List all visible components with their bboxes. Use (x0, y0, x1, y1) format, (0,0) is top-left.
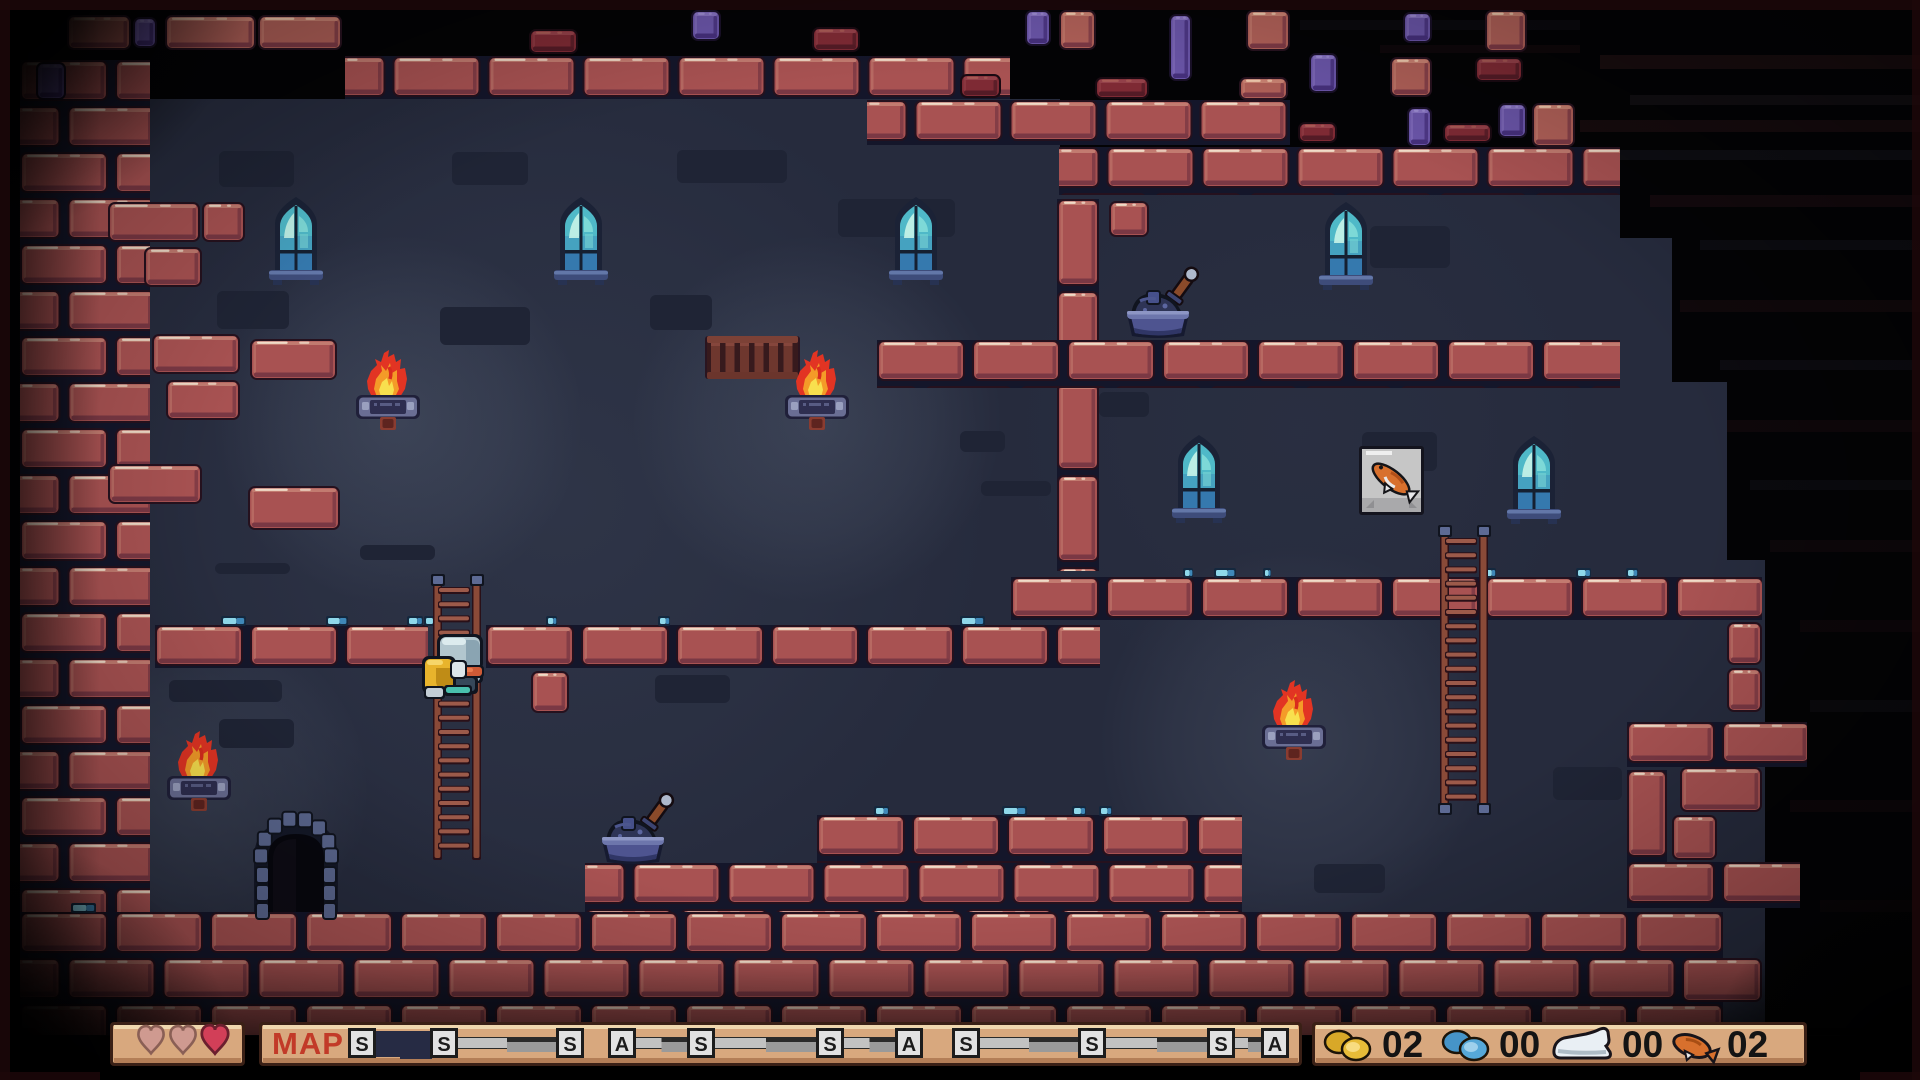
svg-text:A: A (615, 1034, 629, 1056)
svg-text:S: S (355, 1034, 368, 1056)
svg-text:S: S (959, 1034, 972, 1056)
svg-text:S: S (437, 1034, 450, 1056)
svg-text:S: S (1214, 1034, 1227, 1056)
svg-text:00: 00 (1622, 1024, 1663, 1065)
svg-text:A: A (1268, 1034, 1282, 1056)
svg-text:S: S (694, 1034, 707, 1056)
svg-text:S: S (823, 1034, 836, 1056)
svg-text:02: 02 (1727, 1024, 1768, 1065)
svg-text:A: A (902, 1034, 916, 1056)
svg-text:S: S (563, 1034, 576, 1056)
svg-text:00: 00 (1499, 1024, 1540, 1065)
svg-text:S: S (1085, 1034, 1098, 1056)
svg-text:02: 02 (1382, 1024, 1423, 1065)
svg-text:MAP: MAP (272, 1026, 344, 1061)
